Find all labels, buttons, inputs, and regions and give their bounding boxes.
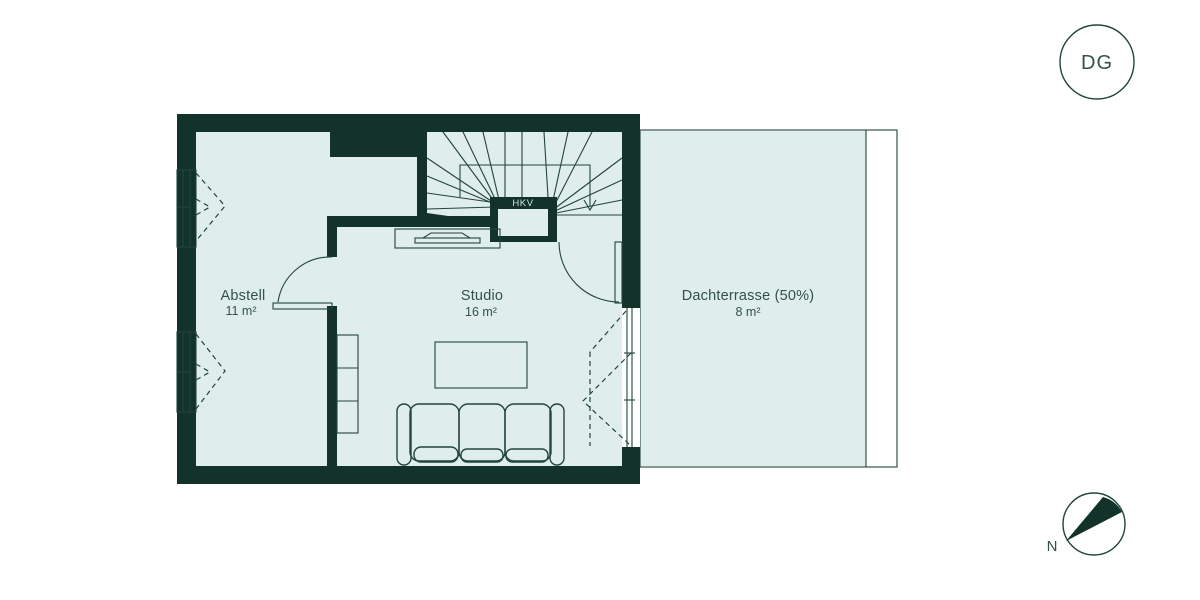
wall-top [177,114,640,132]
wall-right-lower [622,447,640,484]
floor-plan-canvas: Abstell 11 m² Studio 16 m² Dachterrasse … [0,0,1200,600]
wall-abstell-upper [327,216,337,257]
wall-abstell-lower [327,306,337,466]
floor-badge-label: DG [1081,52,1113,74]
room-area-abstell: 11 m² [225,304,256,318]
wall-studio-top [327,216,498,227]
wall-right-upper [622,114,640,308]
wall-left [177,132,196,466]
wall-stair-top-block [330,132,427,157]
room-label-dachterrasse: Dachterrasse (50%) [682,288,815,304]
compass-icon: N [1047,493,1125,555]
hkv-label: HKV [512,198,533,209]
room-label-studio: Studio [461,288,503,304]
floor-plan-page: Abstell 11 m² Studio 16 m² Dachterrasse … [0,0,1200,600]
wall-bottom [177,466,640,484]
room-area-dachterrasse: 8 m² [736,305,761,319]
wall-stair-left [417,132,427,221]
north-label: N [1047,538,1058,555]
floor-badge: DG [1060,25,1134,99]
room-label-abstell: Abstell [221,288,266,304]
room-area-studio: 16 m² [465,305,497,319]
compass-needle-icon [1066,497,1122,541]
hkv-closet-interior [498,209,548,236]
